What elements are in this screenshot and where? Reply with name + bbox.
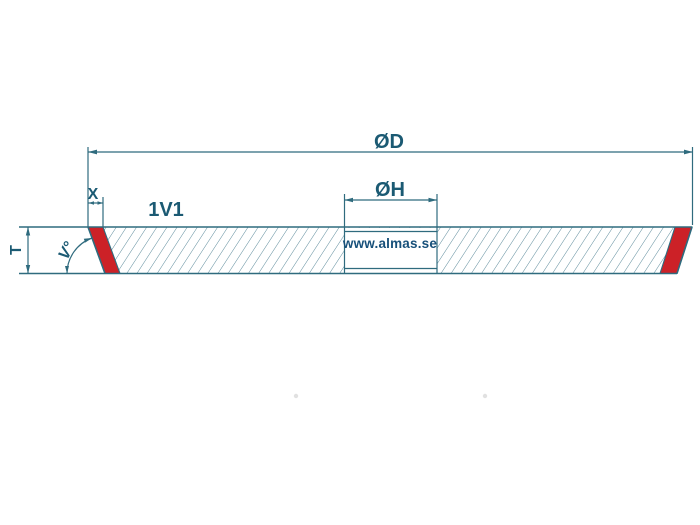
angle-label: V° [56, 239, 79, 262]
t-arrow-top [26, 227, 30, 236]
faint-dot-left [294, 394, 298, 398]
x-dimension-label: X [88, 186, 99, 203]
oh-dimension-label: ØH [375, 179, 405, 201]
oh-arrow-right [429, 198, 438, 202]
faint-dot-right [483, 394, 487, 398]
oh-arrow-left [345, 198, 354, 202]
od-arrow-right [684, 150, 693, 155]
od-dimension-label: ØD [374, 131, 404, 153]
angle-arrow-top [84, 238, 92, 243]
od-arrow-left [88, 150, 97, 155]
wheel-profile-drawing: ØD ØH X T V° 1V1 www.almas.se [0, 0, 700, 525]
wheel-type-label: 1V1 [148, 199, 184, 221]
t-arrow-bottom [26, 265, 30, 274]
watermark-text: www.almas.se [342, 236, 437, 251]
grinding-wheel-diagram: ØD ØH X T V° 1V1 www.almas.se [0, 0, 700, 525]
angle-arrow-bottom [65, 266, 69, 274]
t-dimension-label: T [8, 245, 25, 255]
